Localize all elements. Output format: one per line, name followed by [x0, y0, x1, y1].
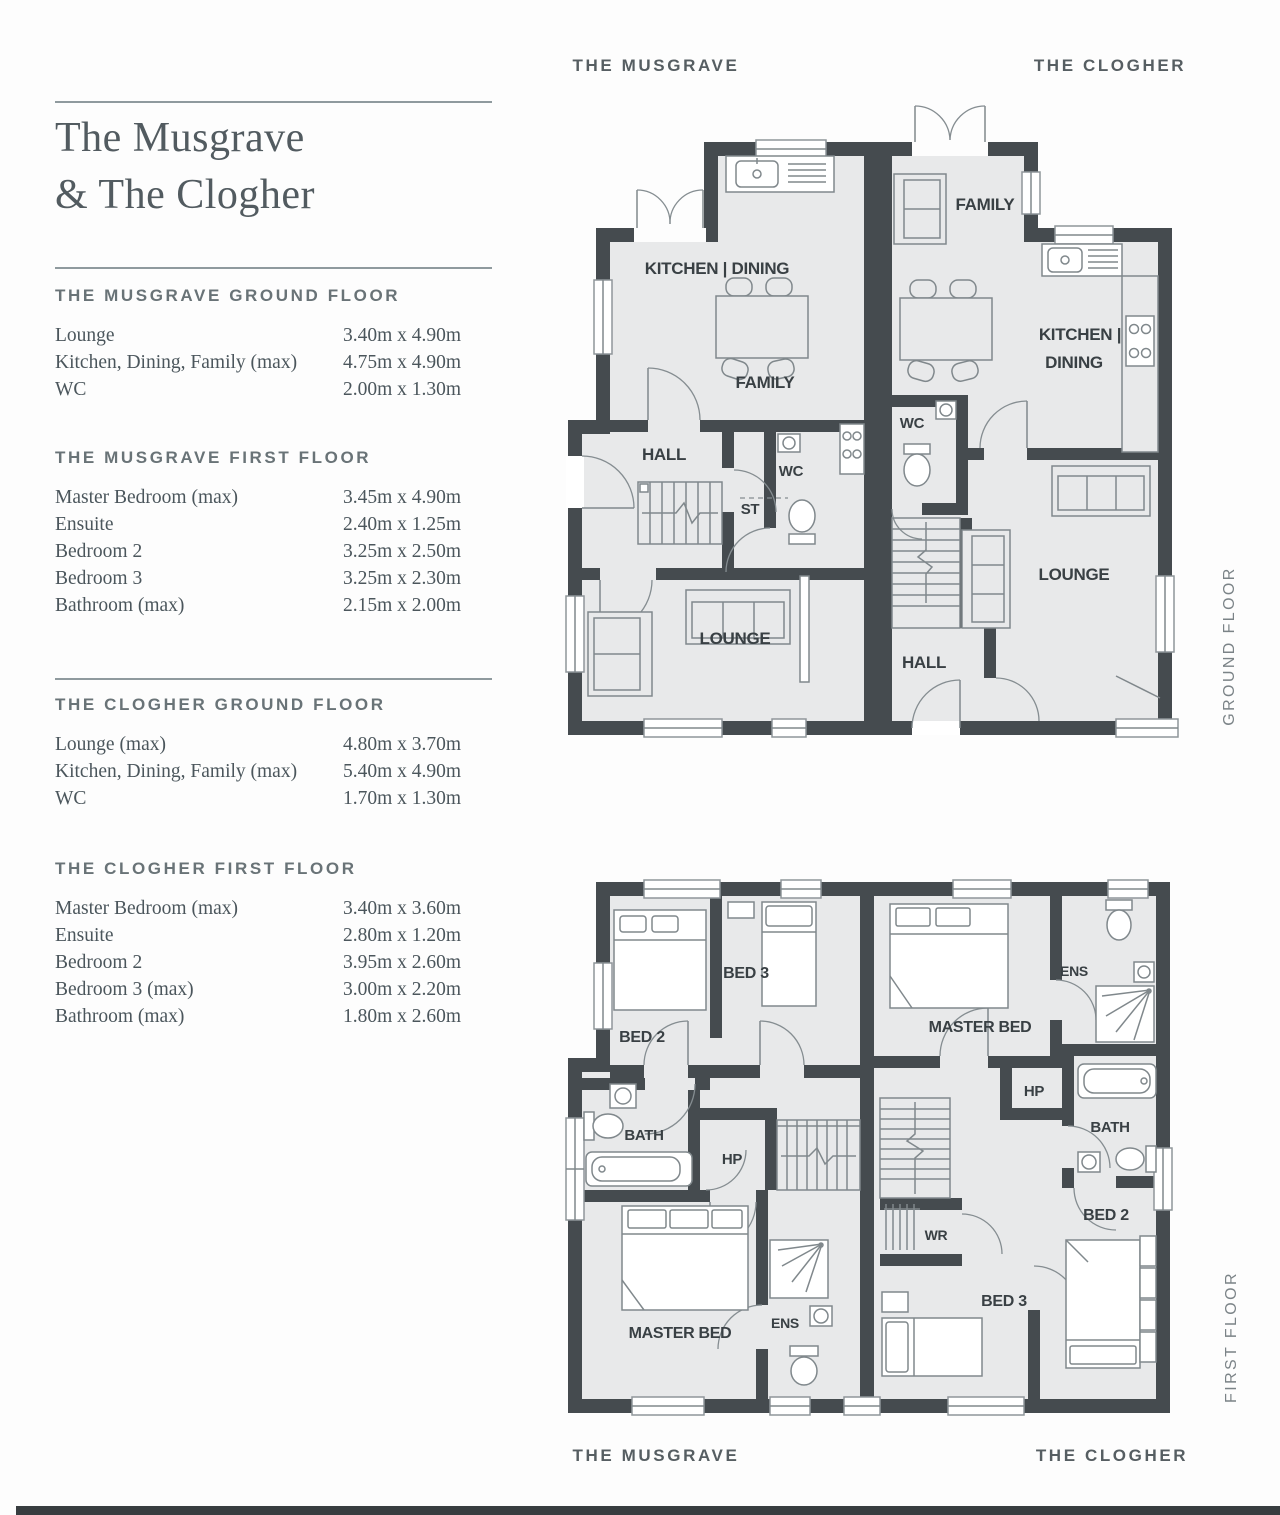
room-name: Bedroom 3 (max) — [55, 976, 343, 1003]
clogher-kitchen-sink-icon — [1042, 244, 1122, 276]
room-label-musgrave-bed3: BED 3 — [723, 965, 769, 982]
room-name: Master Bedroom (max) — [55, 895, 343, 922]
dim-row: Ensuite2.40m x 1.25m — [55, 511, 492, 538]
room-label-musgrave-bath: BATH — [624, 1127, 663, 1144]
musgrave-kitchen-sink-icon — [726, 156, 834, 192]
room-label-clogher-ens: ENS — [1060, 963, 1088, 979]
musgrave-french-doors-icon — [637, 190, 703, 228]
room-label-musgrave-master: MASTER BED — [629, 1325, 732, 1342]
section-heading: THE MUSGRAVE GROUND FLOOR — [55, 286, 492, 306]
divider-musgrave — [55, 267, 492, 269]
dim-row: Lounge3.40m x 4.90m — [55, 322, 492, 349]
room-name: Lounge — [55, 322, 343, 349]
room-name: Bedroom 2 — [55, 538, 343, 565]
room-label-clogher-lounge: LOUNGE — [1039, 565, 1110, 584]
room-dim: 3.25m x 2.50m — [343, 538, 461, 565]
room-dim: 3.40m x 4.90m — [343, 322, 461, 349]
page-title: The Musgrave & The Clogher — [55, 110, 515, 224]
caption-first-floor: FIRST FLOOR — [1223, 1227, 1241, 1447]
clogher-hob-icon — [1126, 316, 1154, 366]
clogher-front-door-gap — [912, 721, 960, 735]
room-label-clogher-hall: HALL — [902, 653, 946, 672]
caption-bottom-clogher: THE CLOGHER — [1002, 1446, 1222, 1466]
dim-row: Bedroom 33.25m x 2.30m — [55, 565, 492, 592]
dim-row: Master Bedroom (max)3.40m x 3.60m — [55, 895, 492, 922]
section-musgrave-ground: THE MUSGRAVE GROUND FLOOR Lounge3.40m x … — [55, 286, 492, 403]
dim-row: Lounge (max)4.80m x 3.70m — [55, 731, 492, 758]
room-name: WC — [55, 376, 343, 403]
room-name: Kitchen, Dining, Family (max) — [55, 758, 343, 785]
clogher-french-door-gap — [912, 142, 988, 156]
divider-clogher — [55, 678, 492, 680]
room-dim: 2.00m x 1.30m — [343, 376, 461, 403]
room-label-clogher-kitchen-line1: KITCHEN | — [1039, 325, 1121, 344]
musgrave-hob-icon — [840, 424, 864, 474]
musgrave-french-door-gap — [634, 228, 706, 242]
page-title-line1: The Musgrave — [55, 110, 515, 167]
room-name: Bedroom 3 — [55, 565, 343, 592]
dim-row: WC2.00m x 1.30m — [55, 376, 492, 403]
page-title-line2: & The Clogher — [55, 167, 515, 224]
room-name: Kitchen, Dining, Family (max) — [55, 349, 343, 376]
musgrave-front-door-gap — [566, 456, 584, 508]
room-dim: 4.80m x 3.70m — [343, 731, 461, 758]
section-heading: THE CLOGHER GROUND FLOOR — [55, 695, 492, 715]
dim-row: Bedroom 23.25m x 2.50m — [55, 538, 492, 565]
room-dim: 2.40m x 1.25m — [343, 511, 461, 538]
room-dim: 3.95m x 2.60m — [343, 949, 461, 976]
dim-row: Kitchen, Dining, Family (max)4.75m x 4.9… — [55, 349, 492, 376]
room-label-clogher-wc: WC — [900, 415, 925, 432]
clogher-family-sofa-icon — [894, 174, 946, 244]
clogher-french-doors-icon — [915, 106, 985, 142]
room-label-clogher-bed3: BED 3 — [981, 1293, 1027, 1310]
dim-row: WC1.70m x 1.30m — [55, 785, 492, 812]
section-musgrave-first: THE MUSGRAVE FIRST FLOOR Master Bedroom … — [55, 448, 492, 619]
room-name: Lounge (max) — [55, 731, 343, 758]
musgrave-bed2-icon — [614, 910, 706, 1010]
room-dim: 3.40m x 3.60m — [343, 895, 461, 922]
room-name: Bedroom 2 — [55, 949, 343, 976]
room-label-musgrave-family: FAMILY — [736, 373, 796, 392]
section-clogher-first: THE CLOGHER FIRST FLOOR Master Bedroom (… — [55, 859, 492, 1030]
dim-row: Bedroom 3 (max)3.00m x 2.20m — [55, 976, 492, 1003]
room-label-clogher-bed2: BED 2 — [1083, 1207, 1129, 1224]
room-label-musgrave-bed2: BED 2 — [619, 1029, 665, 1046]
room-name: WC — [55, 785, 343, 812]
room-label-clogher-wr: WR — [925, 1227, 948, 1243]
section-clogher-ground: THE CLOGHER GROUND FLOOR Lounge (max)4.8… — [55, 695, 492, 812]
first-floor-plan: BED 2 BED 3 BATH HP MASTER BED ENS MASTE… — [560, 868, 1200, 1438]
room-label-clogher-master: MASTER BED — [929, 1019, 1032, 1036]
room-label-musgrave-ens: ENS — [771, 1315, 799, 1331]
musgrave-master-bed-icon — [622, 1206, 748, 1310]
room-label-musgrave-wc: WC — [779, 463, 804, 480]
dim-row: Bathroom (max)2.15m x 2.00m — [55, 592, 492, 619]
room-label-clogher-hp: HP — [1024, 1083, 1045, 1100]
room-name: Ensuite — [55, 922, 343, 949]
room-label-clogher-kitchen-line2: DINING — [1045, 353, 1103, 372]
room-label-musgrave-hp: HP — [722, 1151, 743, 1168]
clogher-lounge-sofa2-icon — [1052, 466, 1150, 516]
dim-row: Bathroom (max)1.80m x 2.60m — [55, 1003, 492, 1030]
room-label-musgrave-kitchen-dining: KITCHEN | DINING — [645, 259, 790, 278]
room-dim: 3.00m x 2.20m — [343, 976, 461, 1003]
room-label-clogher-family: FAMILY — [956, 195, 1016, 214]
dim-row: Bedroom 23.95m x 2.60m — [55, 949, 492, 976]
musgrave-armchair-icon — [588, 612, 652, 696]
room-dim: 2.80m x 1.20m — [343, 922, 461, 949]
room-dim: 3.25m x 2.30m — [343, 565, 461, 592]
room-label-clogher-bath: BATH — [1090, 1119, 1129, 1136]
clogher-bed2-icon — [1066, 1236, 1156, 1368]
room-name: Bathroom (max) — [55, 1003, 343, 1030]
caption-bottom-musgrave: THE MUSGRAVE — [546, 1446, 766, 1466]
section-heading: THE MUSGRAVE FIRST FLOOR — [55, 448, 492, 468]
section-heading: THE CLOGHER FIRST FLOOR — [55, 859, 492, 879]
room-dim: 1.80m x 2.60m — [343, 1003, 461, 1030]
room-name: Bathroom (max) — [55, 592, 343, 619]
bottom-bar — [16, 1506, 1280, 1515]
room-label-musgrave-lounge: LOUNGE — [700, 629, 771, 648]
caption-top-clogher: THE CLOGHER — [1000, 56, 1220, 76]
room-dim: 4.75m x 4.90m — [343, 349, 461, 376]
room-dim: 3.45m x 4.90m — [343, 484, 461, 511]
dim-row: Kitchen, Dining, Family (max)5.40m x 4.9… — [55, 758, 492, 785]
caption-top-musgrave: THE MUSGRAVE — [546, 56, 766, 76]
room-dim: 1.70m x 1.30m — [343, 785, 461, 812]
room-label-musgrave-hall: HALL — [642, 445, 686, 464]
dim-row: Master Bedroom (max)3.45m x 4.90m — [55, 484, 492, 511]
clogher-master-bed-icon — [890, 904, 1008, 1008]
radiator-icon — [800, 576, 809, 682]
room-name: Master Bedroom (max) — [55, 484, 343, 511]
dim-row: Ensuite2.80m x 1.20m — [55, 922, 492, 949]
room-label-musgrave-st: ST — [741, 501, 760, 518]
ground-floor-plan: KITCHEN | DINING FAMILY HALL ST WC LOUNG… — [560, 98, 1200, 748]
room-dim: 2.15m x 2.00m — [343, 592, 461, 619]
room-dim: 5.40m x 4.90m — [343, 758, 461, 785]
clogher-lounge-sofa-icon — [962, 530, 1010, 628]
caption-ground-floor: GROUND FLOOR — [1221, 536, 1239, 756]
divider-top — [55, 101, 492, 103]
room-name: Ensuite — [55, 511, 343, 538]
floorplan-brochure-page: The Musgrave & The Clogher THE MUSGRAVE … — [0, 0, 1280, 1515]
